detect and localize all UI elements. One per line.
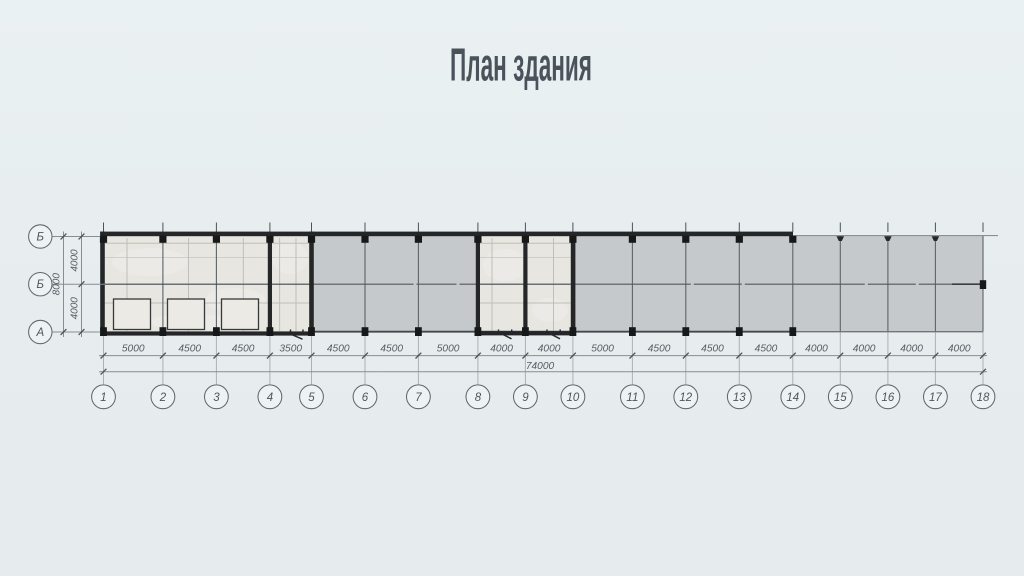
svg-text:18: 18	[977, 392, 990, 404]
svg-text:Б: Б	[37, 279, 45, 291]
svg-text:15: 15	[834, 392, 847, 404]
svg-text:4000: 4000	[853, 344, 876, 355]
svg-text:5000: 5000	[591, 344, 614, 355]
svg-text:4000: 4000	[70, 249, 81, 272]
svg-text:4500: 4500	[232, 344, 255, 355]
svg-text:3500: 3500	[279, 344, 302, 355]
svg-text:5000: 5000	[122, 344, 145, 355]
svg-text:14: 14	[786, 392, 799, 404]
svg-text:12: 12	[679, 392, 692, 404]
svg-text:6: 6	[362, 392, 369, 404]
svg-text:4: 4	[267, 392, 273, 404]
svg-text:4500: 4500	[755, 344, 778, 355]
svg-text:8: 8	[475, 392, 482, 404]
svg-text:4000: 4000	[490, 344, 513, 355]
svg-text:1: 1	[100, 392, 106, 404]
svg-text:8000: 8000	[52, 273, 63, 296]
svg-text:9: 9	[522, 392, 529, 404]
svg-text:17: 17	[929, 392, 942, 404]
svg-text:4500: 4500	[648, 344, 671, 355]
svg-text:4000: 4000	[805, 344, 828, 355]
svg-text:План здания: План здания	[450, 39, 592, 91]
svg-text:4000: 4000	[900, 344, 923, 355]
svg-text:2: 2	[159, 392, 167, 404]
svg-text:4500: 4500	[380, 344, 403, 355]
svg-text:5000: 5000	[437, 344, 460, 355]
svg-text:4500: 4500	[701, 344, 724, 355]
svg-text:16: 16	[882, 392, 895, 404]
svg-text:4500: 4500	[327, 344, 350, 355]
svg-text:4000: 4000	[538, 344, 561, 355]
svg-text:7: 7	[415, 392, 422, 404]
svg-text:4500: 4500	[178, 344, 201, 355]
svg-text:4000: 4000	[70, 297, 81, 320]
svg-text:13: 13	[733, 392, 746, 404]
svg-text:4000: 4000	[948, 344, 971, 355]
svg-text:74000: 74000	[526, 361, 555, 372]
svg-text:Б: Б	[37, 232, 45, 244]
svg-text:А: А	[35, 327, 44, 339]
svg-text:3: 3	[213, 392, 220, 404]
svg-text:5: 5	[308, 392, 315, 404]
svg-text:11: 11	[626, 392, 638, 404]
svg-text:10: 10	[567, 392, 580, 404]
